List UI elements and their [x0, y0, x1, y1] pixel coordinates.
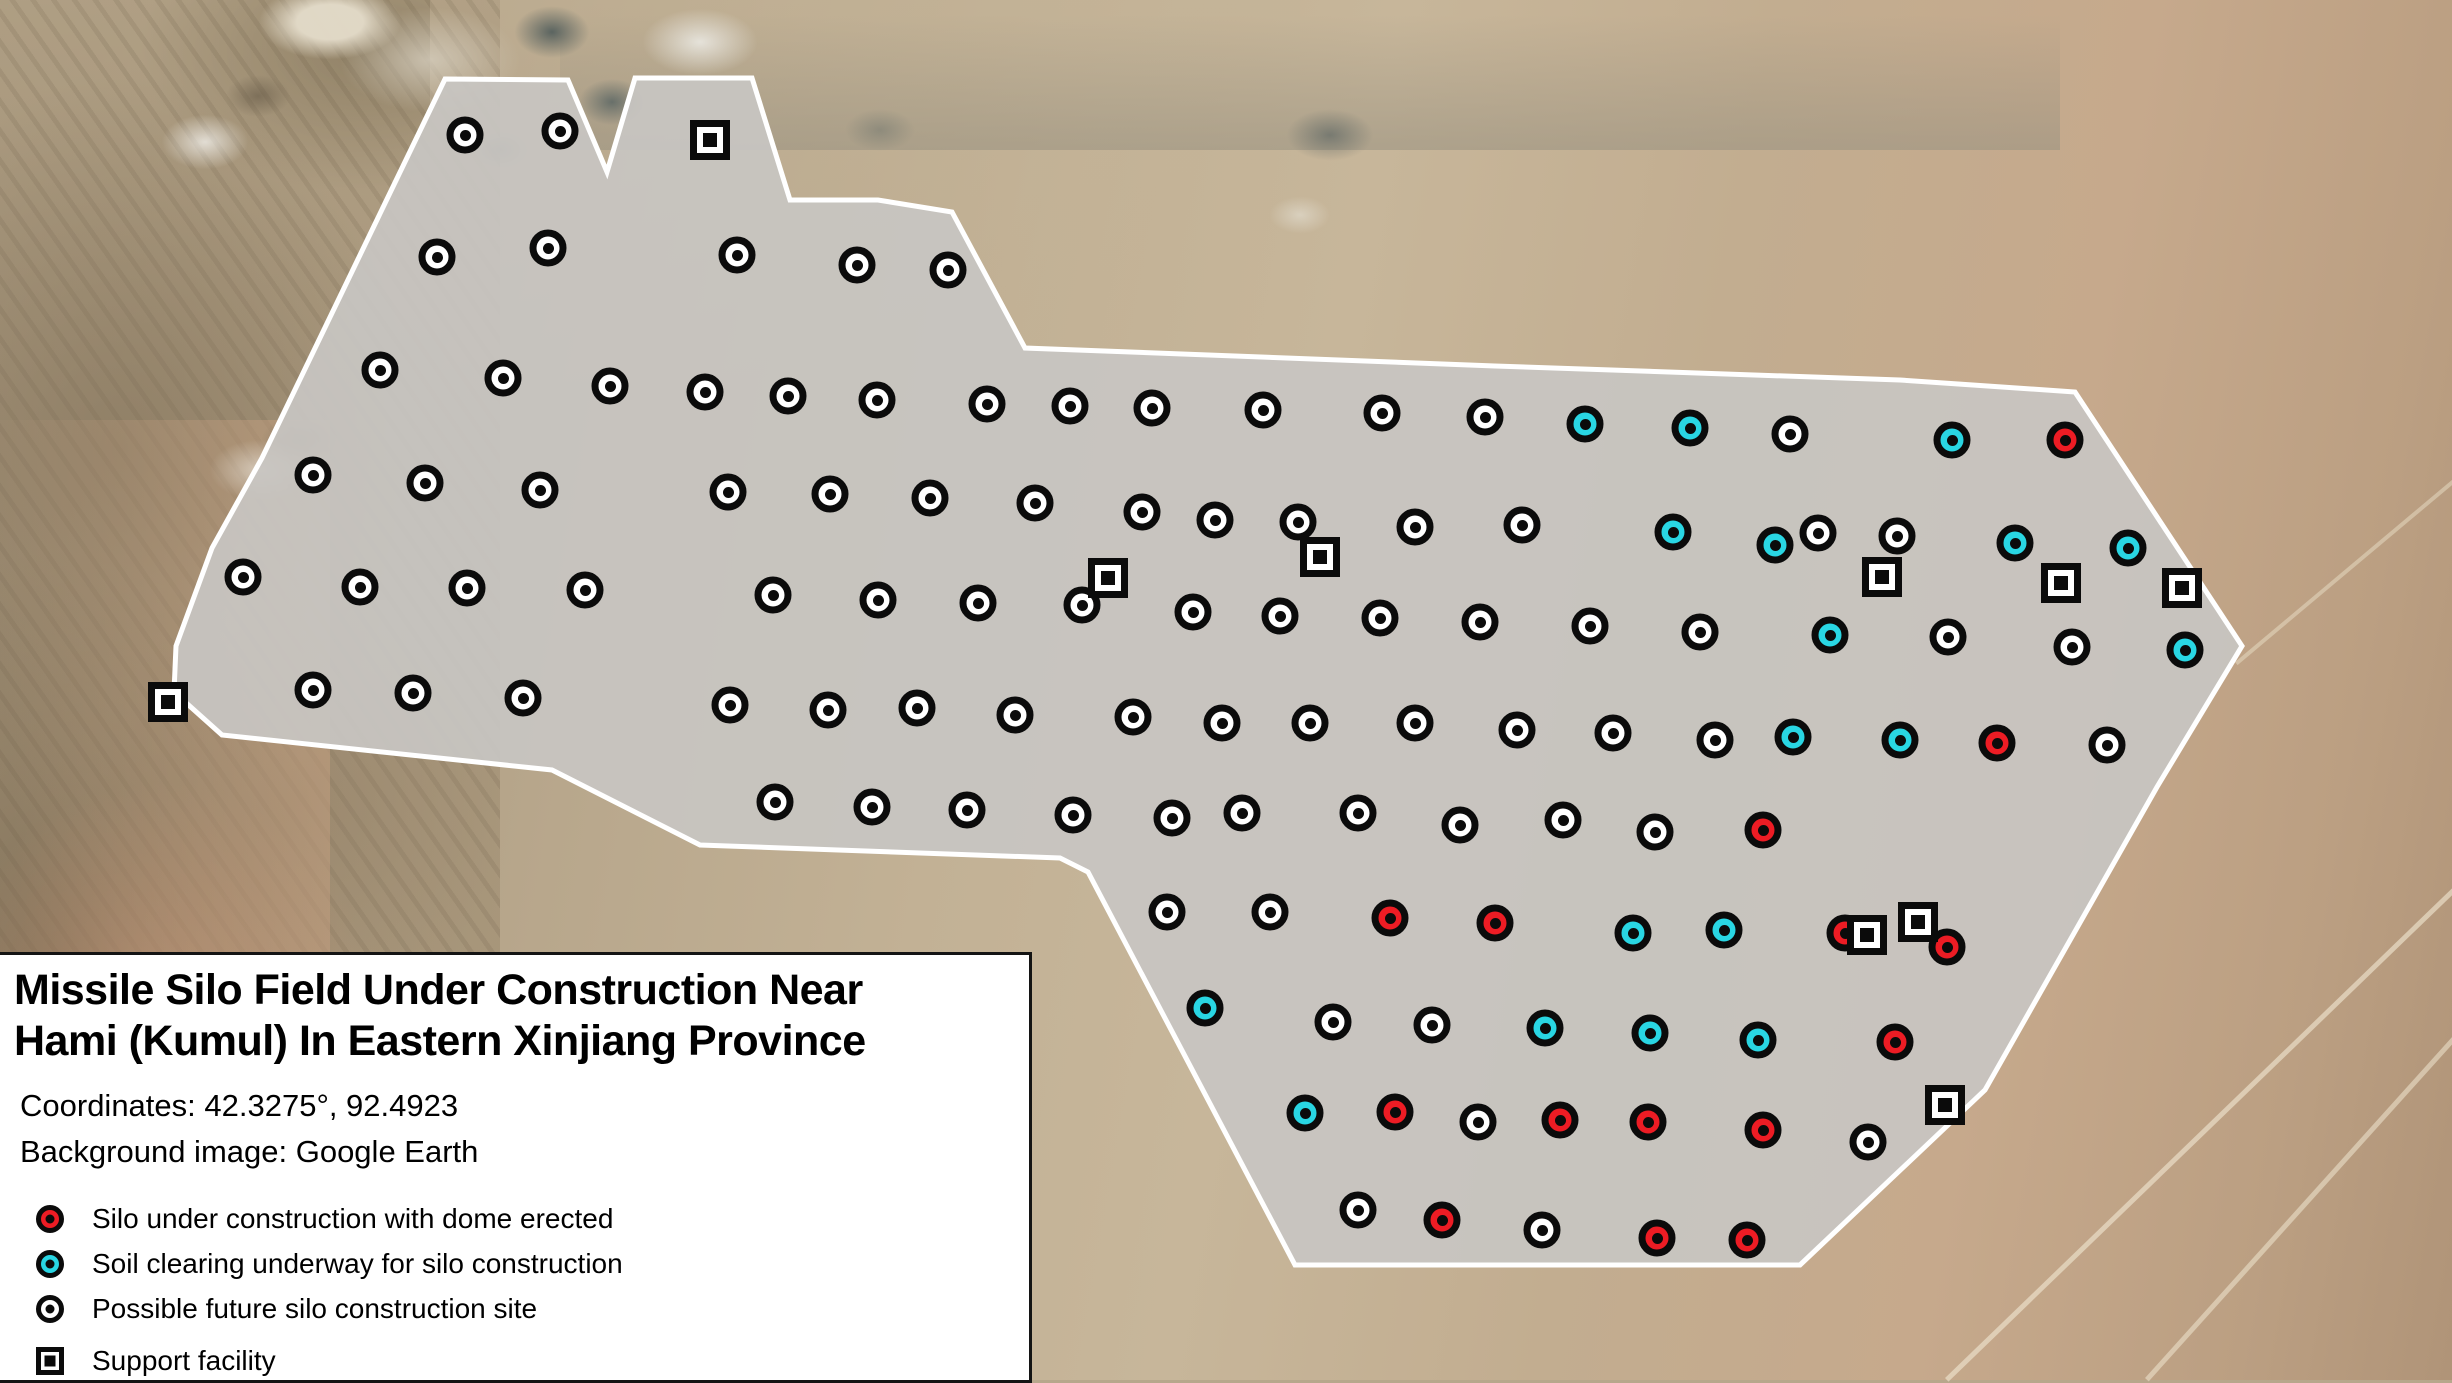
- soil-clearing-marker: [1934, 422, 1971, 459]
- soil-clearing-marker: [1882, 722, 1919, 759]
- possible-future-silo-marker: [1362, 600, 1399, 637]
- possible-future-silo-marker: [1772, 416, 1809, 453]
- map-title-line1: Missile Silo Field Under Construction Ne…: [14, 965, 1011, 1016]
- legend-item-clearing: Soil clearing underway for silo construc…: [24, 1241, 1011, 1286]
- support-facility-marker: [148, 682, 188, 722]
- possible-future-silo-marker: [225, 559, 262, 596]
- possible-future-silo-marker: [485, 360, 522, 397]
- possible-future-silo-marker: [1052, 388, 1089, 425]
- possible-future-silo-marker: [522, 472, 559, 509]
- legend-label-future: Possible future silo construction site: [92, 1293, 537, 1325]
- possible-future-silo-marker: [2089, 727, 2126, 764]
- silo-dome-marker: [1477, 905, 1514, 942]
- silo-dome-marker: [1877, 1024, 1914, 1061]
- support-facility-marker: [1847, 915, 1887, 955]
- map-title: Missile Silo Field Under Construction Ne…: [14, 965, 1011, 1066]
- possible-future-silo-marker: [1224, 795, 1261, 832]
- possible-future-silo-marker: [1134, 390, 1171, 427]
- possible-future-silo-marker: [1204, 705, 1241, 742]
- legend-label-dome: Silo under construction with dome erecte…: [92, 1203, 613, 1235]
- possible-future-silo-marker: [395, 675, 432, 712]
- possible-future-silo-marker: [710, 474, 747, 511]
- info-panel: Missile Silo Field Under Construction Ne…: [0, 952, 1032, 1383]
- possible-future-silo-marker: [1055, 797, 1092, 834]
- silo-dome-marker: [1377, 1094, 1414, 1131]
- legend-item-future: Possible future silo construction site: [24, 1286, 1011, 1331]
- possible-future-silo-marker: [1292, 705, 1329, 742]
- possible-future-silo-marker: [810, 692, 847, 729]
- soil-clearing-marker: [1672, 410, 1709, 447]
- possible-future-silo-marker: [1017, 485, 1054, 522]
- possible-future-silo-marker: [1930, 619, 1967, 656]
- possible-future-silo-marker: [1252, 894, 1289, 931]
- possible-future-silo-marker: [1879, 518, 1916, 555]
- possible-future-silo-marker: [1467, 399, 1504, 436]
- support-facility-marker: [1925, 1085, 1965, 1125]
- silo-dome-marker: [2047, 422, 2084, 459]
- possible-future-silo-marker: [912, 480, 949, 517]
- possible-future-silo-marker: [1340, 795, 1377, 832]
- coordinates-text: Coordinates: 42.3275°, 92.4923: [20, 1088, 1011, 1124]
- possible-future-silo-marker: [449, 570, 486, 607]
- possible-future-silo-marker: [1115, 699, 1152, 736]
- possible-future-silo-marker: [407, 465, 444, 502]
- support-facility-marker: [1862, 557, 1902, 597]
- possible-future-silo-marker: [1364, 395, 1401, 432]
- possible-future-silo-marker: [1442, 807, 1479, 844]
- possible-future-silo-marker: [770, 378, 807, 415]
- possible-future-silo-marker: [899, 690, 936, 727]
- soil-clearing-marker: [2167, 632, 2204, 669]
- possible-future-silo-marker: [757, 784, 794, 821]
- legend-label-support: Support facility: [92, 1345, 276, 1377]
- support-facility-marker: [2041, 563, 2081, 603]
- possible-future-silo-marker: [362, 352, 399, 389]
- possible-future-silo-marker: [1460, 1104, 1497, 1141]
- soil-clearing-marker: [1740, 1022, 1777, 1059]
- legend-future-icon: [36, 1295, 64, 1323]
- possible-future-silo-marker: [712, 687, 749, 724]
- silo-dome-marker: [1424, 1202, 1461, 1239]
- legend-label-clearing: Soil clearing underway for silo construc…: [92, 1248, 623, 1280]
- possible-future-silo-marker: [1850, 1124, 1887, 1161]
- possible-future-silo-marker: [342, 569, 379, 606]
- possible-future-silo-marker: [447, 117, 484, 154]
- legend-dome-icon: [36, 1205, 64, 1233]
- possible-future-silo-marker: [839, 247, 876, 284]
- legend-clearing-icon: [36, 1250, 64, 1278]
- possible-future-silo-marker: [1262, 598, 1299, 635]
- silo-dome-marker: [1745, 812, 1782, 849]
- possible-future-silo-marker: [997, 697, 1034, 734]
- possible-future-silo-marker: [419, 239, 456, 276]
- possible-future-silo-marker: [1154, 800, 1191, 837]
- soil-clearing-marker: [1287, 1095, 1324, 1132]
- possible-future-silo-marker: [687, 374, 724, 411]
- soil-clearing-marker: [1615, 915, 1652, 952]
- possible-future-silo-marker: [719, 237, 756, 274]
- possible-future-silo-marker: [505, 680, 542, 717]
- possible-future-silo-marker: [1414, 1007, 1451, 1044]
- legend-support-icon: [36, 1347, 64, 1375]
- possible-future-silo-marker: [860, 582, 897, 619]
- soil-clearing-marker: [2110, 530, 2147, 567]
- soil-clearing-marker: [1655, 514, 1692, 551]
- possible-future-silo-marker: [859, 382, 896, 419]
- silo-dome-marker: [1745, 1112, 1782, 1149]
- support-facility-marker: [2162, 568, 2202, 608]
- possible-future-silo-marker: [1504, 507, 1541, 544]
- possible-future-silo-marker: [1697, 722, 1734, 759]
- possible-future-silo-marker: [960, 585, 997, 622]
- soil-clearing-marker: [1187, 990, 1224, 1027]
- silo-dome-marker: [1979, 725, 2016, 762]
- silo-dome-marker: [1630, 1104, 1667, 1141]
- possible-future-silo-marker: [1149, 894, 1186, 931]
- possible-future-silo-marker: [1340, 1192, 1377, 1229]
- support-facility-marker: [1300, 537, 1340, 577]
- possible-future-silo-marker: [1682, 614, 1719, 651]
- possible-future-silo-marker: [1499, 712, 1536, 749]
- possible-future-silo-marker: [1800, 515, 1837, 552]
- possible-future-silo-marker: [1245, 392, 1282, 429]
- soil-clearing-marker: [1997, 525, 2034, 562]
- possible-future-silo-marker: [1524, 1212, 1561, 1249]
- possible-future-silo-marker: [530, 230, 567, 267]
- possible-future-silo-marker: [949, 792, 986, 829]
- support-facility-marker: [1898, 902, 1938, 942]
- possible-future-silo-marker: [1462, 604, 1499, 641]
- soil-clearing-marker: [1632, 1015, 1669, 1052]
- possible-future-silo-marker: [567, 572, 604, 609]
- possible-future-silo-marker: [1175, 594, 1212, 631]
- possible-future-silo-marker: [1637, 814, 1674, 851]
- legend: Silo under construction with dome erecte…: [24, 1196, 1011, 1383]
- possible-future-silo-marker: [1572, 608, 1609, 645]
- possible-future-silo-marker: [854, 789, 891, 826]
- possible-future-silo-marker: [542, 113, 579, 150]
- support-facility-marker: [690, 120, 730, 160]
- map-title-line2: Hami (Kumul) In Eastern Xinjiang Provinc…: [14, 1016, 1011, 1067]
- soil-clearing-marker: [1567, 406, 1604, 443]
- silo-dome-marker: [1639, 1220, 1676, 1257]
- soil-clearing-marker: [1812, 617, 1849, 654]
- possible-future-silo-marker: [969, 386, 1006, 423]
- possible-future-silo-marker: [592, 368, 629, 405]
- possible-future-silo-marker: [1124, 494, 1161, 531]
- possible-future-silo-marker: [1197, 502, 1234, 539]
- silo-dome-marker: [1729, 1222, 1766, 1259]
- possible-future-silo-marker: [1397, 509, 1434, 546]
- possible-future-silo-marker: [1315, 1004, 1352, 1041]
- possible-future-silo-marker: [295, 672, 332, 709]
- soil-clearing-marker: [1775, 719, 1812, 756]
- possible-future-silo-marker: [1397, 705, 1434, 742]
- possible-future-silo-marker: [295, 457, 332, 494]
- legend-item-dome: Silo under construction with dome erecte…: [24, 1196, 1011, 1241]
- soil-clearing-marker: [1527, 1010, 1564, 1047]
- soil-clearing-marker: [1706, 912, 1743, 949]
- background-credit-text: Background image: Google Earth: [20, 1134, 1011, 1170]
- possible-future-silo-marker: [2054, 629, 2091, 666]
- support-facility-marker: [1088, 558, 1128, 598]
- soil-clearing-marker: [1757, 527, 1794, 564]
- possible-future-silo-marker: [930, 252, 967, 289]
- legend-item-support: Support facility: [24, 1338, 1011, 1383]
- possible-future-silo-marker: [755, 577, 792, 614]
- possible-future-silo-marker: [1545, 802, 1582, 839]
- possible-future-silo-marker: [1280, 504, 1317, 541]
- possible-future-silo-marker: [1595, 715, 1632, 752]
- possible-future-silo-marker: [812, 476, 849, 513]
- silo-dome-marker: [1372, 900, 1409, 937]
- silo-dome-marker: [1542, 1102, 1579, 1139]
